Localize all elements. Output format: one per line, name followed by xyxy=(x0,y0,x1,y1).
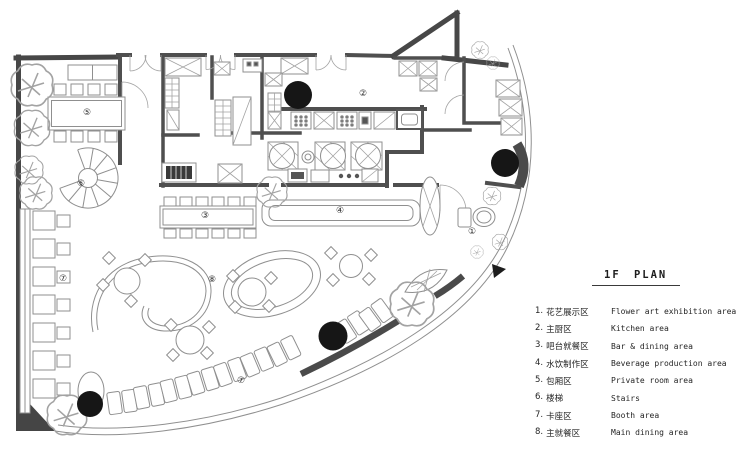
beverage-counter xyxy=(268,142,382,170)
legend-item-number: 3. xyxy=(535,340,543,352)
toilet-tank xyxy=(458,208,471,227)
legend-item-en: Kitchen area xyxy=(611,324,669,333)
legend-item-zh: 主厨区 xyxy=(546,323,572,335)
plan-label-3: ③ xyxy=(201,211,209,221)
legend-item-en: Private room area xyxy=(611,376,693,385)
column xyxy=(491,149,519,177)
spiral-staircase xyxy=(60,148,118,208)
private-room-furniture xyxy=(48,65,125,142)
legend-item-number: 7. xyxy=(535,410,543,422)
legend-item-4: 4.水饮制作区 Beverage production area xyxy=(535,355,748,372)
legend: 1F PLAN 1.花艺展示区 Flower art exhibition ar… xyxy=(535,269,748,442)
plan-label-7a: ⑦ xyxy=(59,274,67,284)
legend-item-number: 6. xyxy=(535,392,543,404)
column xyxy=(319,322,348,351)
legend-item-number: 1. xyxy=(535,306,543,318)
legend-item-8: 8.主就餐区 Main dining area xyxy=(535,424,748,441)
legend-divider xyxy=(592,285,680,286)
plan-label-4: ④ xyxy=(336,206,344,216)
toilet-bowl xyxy=(473,208,495,227)
plan-label-6: ⑥ xyxy=(77,179,85,189)
legend-item-5: 5.包厢区 Private room area xyxy=(535,372,748,389)
bar-equipment xyxy=(288,169,378,182)
plan-label-1: ① xyxy=(468,227,476,237)
legend-item-number: 8. xyxy=(535,427,543,439)
legend-item-en: Bar & dining area xyxy=(611,342,693,351)
legend-item-en: Booth area xyxy=(611,411,659,420)
legend-item-zh: 水饮制作区 xyxy=(546,358,589,370)
legend-item-en: Flower art exhibition area xyxy=(611,307,736,316)
legend-item-en: Stairs xyxy=(611,394,640,403)
entrance-arrow-icon xyxy=(492,264,506,278)
legend-item-zh: 吧台就餐区 xyxy=(546,340,589,352)
plan-label-5: ⑤ xyxy=(83,108,91,118)
legend-item-3: 3.吧台就餐区 Bar & dining area xyxy=(535,338,748,355)
column xyxy=(284,81,312,109)
restroom-door xyxy=(440,185,466,211)
vestibule-doors xyxy=(445,62,464,114)
column xyxy=(77,391,103,417)
legend-item-zh: 楼梯 xyxy=(546,392,563,404)
legend-title: 1F PLAN xyxy=(604,269,748,281)
legend-item-2: 2.主厨区 Kitchen area xyxy=(535,320,748,337)
legend-item-number: 5. xyxy=(535,375,543,387)
legend-item-7: 7.卡座区 Booth area xyxy=(535,407,748,424)
legend-rows: 1.花艺展示区 Flower art exhibition area 2.主厨区… xyxy=(535,303,748,442)
legend-item-zh: 卡座区 xyxy=(546,410,572,422)
plan-label-7b: ⑦ xyxy=(237,376,245,386)
legend-item-1: 1.花艺展示区 Flower art exhibition area xyxy=(535,303,748,320)
private-room-door xyxy=(122,82,148,108)
legend-item-6: 6.楼梯 Stairs xyxy=(535,390,748,407)
plan-label-2: ② xyxy=(359,89,367,99)
legend-item-en: Main dining area xyxy=(611,428,688,437)
plan-label-8: ⑧ xyxy=(208,275,216,285)
legend-item-number: 4. xyxy=(535,358,543,370)
left-booth-row xyxy=(20,209,70,413)
legend-item-number: 2. xyxy=(535,323,543,335)
legend-item-zh: 花艺展示区 xyxy=(546,306,589,318)
legend-item-zh: 主就餐区 xyxy=(546,427,580,439)
kitchen-equipment xyxy=(162,58,522,183)
legend-item-zh: 包厢区 xyxy=(546,375,572,387)
sink xyxy=(397,110,422,129)
floor-plan-page: ① ② ③ ④ ⑤ ⑥ ⑦ ⑦ ⑧ 1F PLAN 1.花艺展示区 Flower… xyxy=(0,0,750,455)
legend-item-en: Beverage production area xyxy=(611,359,727,368)
